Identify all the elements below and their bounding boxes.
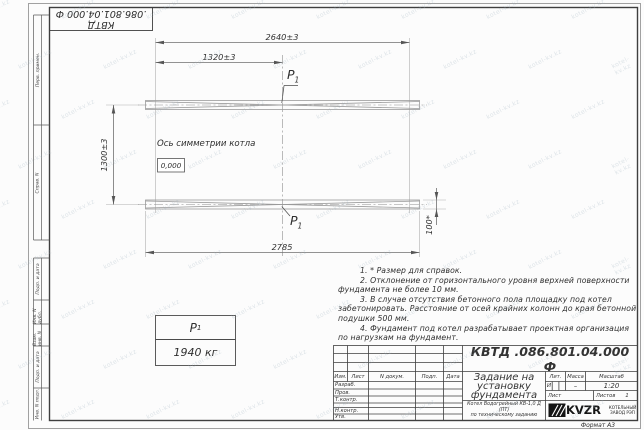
sig-row-tkontr: Т.контр. <box>335 396 368 403</box>
title-block-doc-title: Задание на установку фундамента <box>464 373 544 400</box>
lit-value: И <box>546 382 553 391</box>
mass-value: – <box>566 382 586 391</box>
load-point-label-top: P1 <box>287 67 299 85</box>
axis-of-symmetry-label: Ось симметрии котла <box>157 139 255 149</box>
side-strip-label: Инв. N дубл. <box>34 300 42 324</box>
header-col-data: Дата <box>444 372 463 382</box>
load-point-label-bottom: P1 <box>290 213 302 231</box>
note-line: подушки 500 мм. <box>338 314 409 323</box>
scale-label: Масштаб <box>586 372 638 382</box>
product-name: Котел Водогрейный КВ-1,0 Д (ПТ) по техни… <box>463 401 545 420</box>
load-table-symbol: P1 <box>156 316 235 339</box>
centerlines <box>138 55 427 258</box>
header-col-list: Лист <box>348 372 369 382</box>
note-line: 2. Отклонение от горизонтального уровня … <box>360 276 630 285</box>
side-strip-label: Перв. примен. <box>34 15 42 125</box>
logo-glyph <box>549 404 567 418</box>
note-line: 1. * Размер для справок. <box>360 266 462 275</box>
lit-label: Лит. <box>546 372 566 382</box>
sig-row-utv: Утв. <box>335 414 368 421</box>
note-line: 3. В случае отсутствия бетонного пола пл… <box>360 295 612 304</box>
dim-bottom-label: 2785 <box>252 241 312 252</box>
header-col-podp: Подп. <box>416 372 444 382</box>
logo-text: KVZR <box>566 403 608 419</box>
side-strip-label: Подп. и дата <box>34 346 42 388</box>
dim-beam-height-label: 100* <box>424 210 434 240</box>
dim-top-label: 2640±3 <box>247 31 317 42</box>
side-strip-label: Инв. N подл. <box>34 388 42 421</box>
stamp-designation: КВТД .086.801.04.000 Ф <box>50 8 152 30</box>
side-strip-label: Справ. N <box>34 125 42 240</box>
sheets-value: 1 <box>620 391 634 401</box>
sig-row-razrab: Разраб. <box>335 382 368 390</box>
side-strip-label: Подп. и дата <box>34 258 42 300</box>
scale-value: 1:20 <box>586 382 638 391</box>
dim-height-label: 1300±3 <box>99 130 109 180</box>
note-line: по нагрузкам на фундамент. <box>338 333 459 342</box>
note-line: 4. Фундамент под котел разрабатывает про… <box>360 324 629 333</box>
drawing-sheet: Перв. примен. Справ. N Подп. и дата Инв.… <box>0 0 644 430</box>
side-strip-label: Взам. инв. N <box>34 324 42 346</box>
level-mark: 0,000 <box>158 159 185 173</box>
sheets-label: Листов <box>596 391 622 401</box>
load-table-value: 1940 кг <box>156 340 235 364</box>
header-col-ndocum: N докум. <box>369 372 416 382</box>
format-label: Формат А3 <box>577 421 619 429</box>
mass-label: Масса <box>566 372 586 382</box>
sig-row-prov: Пров. <box>335 389 368 396</box>
logo-subtitle: КОТЕЛЬНЫЙ ЗАВОД РЭП <box>606 404 639 417</box>
note-line: забетонировать. Расстояние от осей крайн… <box>338 304 636 313</box>
note-line: фундамента не более 10 мм. <box>338 285 459 294</box>
sheet-label: Лист <box>548 391 568 401</box>
title-block-designation: КВТД .086.801.04.000 Ф <box>464 347 636 370</box>
header-col-izm: Изм. <box>334 372 348 382</box>
dim-half-label: 1320±3 <box>184 51 254 62</box>
